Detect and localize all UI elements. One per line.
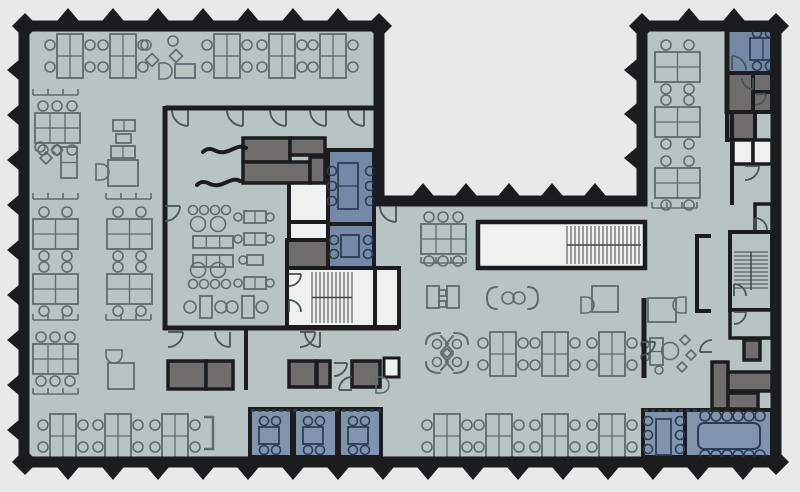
kitchen-counter <box>243 138 290 162</box>
floor-plan <box>0 0 800 492</box>
kitchenette-block <box>712 362 728 409</box>
kitchen-counter <box>243 162 310 183</box>
wc-room-e <box>753 140 772 164</box>
storage-cabinet <box>317 361 330 387</box>
wc-room-b <box>289 222 328 240</box>
kitchen-counter <box>310 157 325 183</box>
storage-cabinet <box>206 361 233 389</box>
utility-room <box>753 73 772 92</box>
utility-room <box>727 73 753 112</box>
storage-cabinet <box>289 361 316 387</box>
meeting-room-core-a <box>328 150 374 224</box>
kitchenette-block <box>728 372 772 391</box>
kitchenette-block <box>728 393 758 409</box>
meeting-room-core-b <box>328 224 374 268</box>
storage-cabinet <box>168 361 206 389</box>
wc-room-e <box>733 140 753 164</box>
floor-plan-canvas <box>0 0 800 492</box>
copy-nook <box>384 358 399 377</box>
elevator-room <box>375 268 399 327</box>
kitchen-counter <box>290 138 325 155</box>
kitchenette-block <box>744 340 760 360</box>
wc-room-a <box>289 182 328 222</box>
storage-room-core <box>287 240 328 268</box>
